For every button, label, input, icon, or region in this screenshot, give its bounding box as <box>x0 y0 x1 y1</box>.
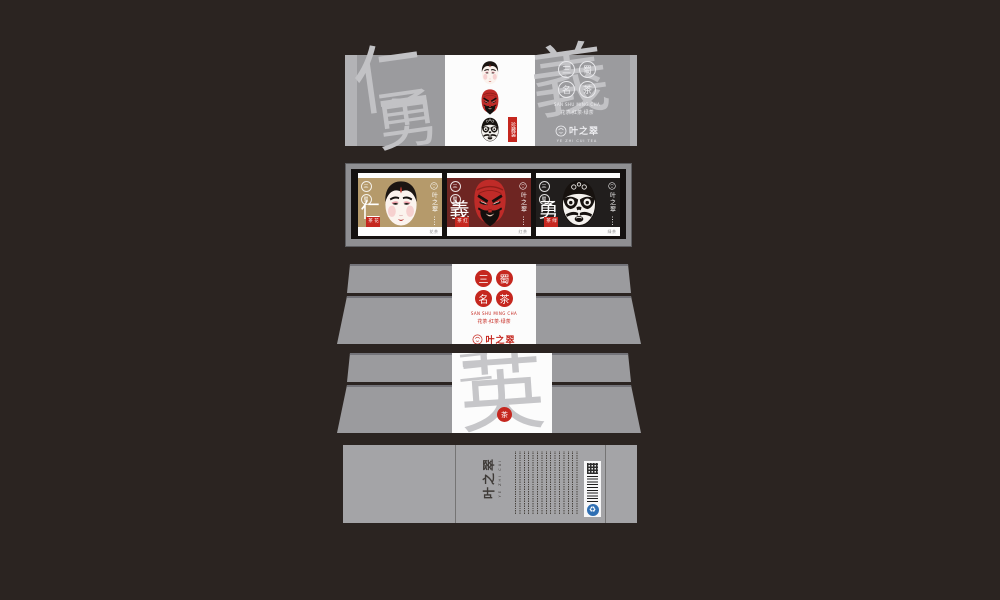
card-footer-text: 红茶 <box>519 229 528 235</box>
brand-logo: 叶之翠 <box>472 333 515 344</box>
brand-emblem-icon <box>519 182 527 190</box>
brand-logo: 叶之翠 <box>555 124 599 137</box>
sleeve-left-fold <box>345 55 357 146</box>
rotated-brand-mark: 叶之翠 YE ZHI CUI <box>480 448 502 508</box>
white-face-mask-icon <box>379 178 423 227</box>
tea-types-caption: 花茶·红茶·绿茶 <box>560 109 593 116</box>
brand-latin: YE ZHI CUI <box>498 459 502 498</box>
tea-card-yong: 三 蜀 勇 绿茶 叶之翠 绿茶 <box>536 173 620 236</box>
front-label: 三 蜀 名 茶 SAN SHU MING CHA 花茶·红茶·绿茶 叶之翠 YE… <box>452 264 536 344</box>
name-seal-grid: 三 蜀 名 茶 <box>475 270 513 307</box>
tea-type-seal: 花茶 <box>366 217 380 227</box>
black-face-mask-icon <box>475 116 505 143</box>
tea-card-ren: 三 蜀 仁 花茶 叶之翠 花茶 <box>358 173 442 236</box>
panel-sleeve-top: 珍藏装 仁 勇 義 三 蜀 名 茶 SAN SHU MING CHA 花茶·红茶… <box>345 55 637 146</box>
qr-code <box>587 463 598 474</box>
panel-box-bottom: 叶之翠 YE ZHI CUI ♻ <box>343 445 637 523</box>
seal-char: 三 <box>450 181 461 192</box>
card-footer-text: 绿茶 <box>608 229 617 235</box>
tea-types-caption: 花茶·红茶·绿茶 <box>477 318 510 325</box>
card-brand-logo: 叶之翠 <box>608 182 617 225</box>
collector-tag: 珍藏装 <box>508 117 517 142</box>
card-brand-logo: 叶之翠 <box>519 182 528 225</box>
regulatory-microtext <box>515 451 581 515</box>
fold-line <box>455 445 456 523</box>
seal-char: 茶 <box>496 290 513 307</box>
card-brand-logo: 叶之翠 <box>430 182 439 225</box>
brand-emblem-icon <box>430 182 438 190</box>
tea-type-seal: 绿茶 <box>544 217 558 227</box>
seal-char: 三 <box>539 181 550 192</box>
fold-line <box>605 445 606 523</box>
red-face-mask-icon <box>468 178 512 227</box>
red-face-mask-icon <box>474 88 506 116</box>
barcode <box>587 476 598 502</box>
calligraphy-watermark-ren: 仁 <box>348 38 432 122</box>
card-art: 三 蜀 義 红茶 叶之翠 <box>447 178 531 227</box>
brand-name-vertical: 叶之翠 <box>430 192 439 213</box>
name-seal-grid: 三 蜀 名 茶 <box>558 61 596 98</box>
panel-lid-back: 三 英 茶 <box>337 353 641 433</box>
pinyin-caption: SAN SHU MING CHA <box>554 102 600 107</box>
brand-name: 叶之翠 <box>485 333 515 344</box>
seal-char: 蜀 <box>496 270 513 287</box>
brand-name: 叶之翠 <box>480 457 497 499</box>
brand-emblem-icon <box>608 182 616 190</box>
tea-packaging-presentation: 珍藏装 仁 勇 義 三 蜀 名 茶 SAN SHU MING CHA 花茶·红茶… <box>0 0 1000 600</box>
card-art: 三 蜀 勇 绿茶 叶之翠 <box>536 178 620 227</box>
recycle-icon: ♻ <box>587 504 599 516</box>
pinyin-caption: SAN SHU MING CHA <box>471 311 517 316</box>
seal-char: 茶 <box>579 81 596 98</box>
seal-script-column <box>523 215 524 225</box>
card-footer-text: 花茶 <box>430 229 439 235</box>
seal-char: 三 <box>558 61 575 78</box>
white-face-mask-icon <box>475 59 505 86</box>
brand-name-vertical: 叶之翠 <box>608 192 617 213</box>
sleeve-center-label: 珍藏装 <box>445 55 535 146</box>
seal-script-column <box>612 215 613 225</box>
seal-char: 三 <box>475 270 492 287</box>
tray-window: 三 蜀 仁 花茶 叶之翠 花茶 三 <box>351 169 626 239</box>
black-face-mask-icon <box>557 178 601 227</box>
calligraphy-watermark-yong: 勇 <box>371 85 443 157</box>
brand-emblem-icon <box>472 334 483 344</box>
red-seal-stamp: 茶 <box>497 407 512 422</box>
barcode-label: ♻ <box>584 461 601 517</box>
brand-name: 叶之翠 <box>569 124 599 137</box>
tea-type-seal: 红茶 <box>455 217 469 227</box>
seal-script-column <box>434 215 435 225</box>
seal-char: 蜀 <box>579 61 596 78</box>
sleeve-right-fold <box>630 55 637 146</box>
seal-char: 名 <box>475 290 492 307</box>
brand-latin: YE ZHI CUI TEA <box>557 139 598 143</box>
seal-char: 名 <box>558 81 575 98</box>
panel-card-tray: 三 蜀 仁 花茶 叶之翠 花茶 三 <box>345 163 632 247</box>
brand-emblem-icon <box>555 125 567 137</box>
brand-seal-block: 三 蜀 名 茶 SAN SHU MING CHA 花茶·红茶·绿茶 叶之翠 YE… <box>548 61 606 143</box>
seal-char: 三 <box>361 181 372 192</box>
brand-name-vertical: 叶之翠 <box>519 192 528 213</box>
card-art: 三 蜀 仁 花茶 叶之翠 <box>358 178 442 227</box>
tea-card-yi: 三 蜀 義 红茶 叶之翠 红茶 <box>447 173 531 236</box>
panel-lid-front: 三 蜀 名 茶 SAN SHU MING CHA 花茶·红茶·绿茶 叶之翠 YE… <box>337 264 641 344</box>
